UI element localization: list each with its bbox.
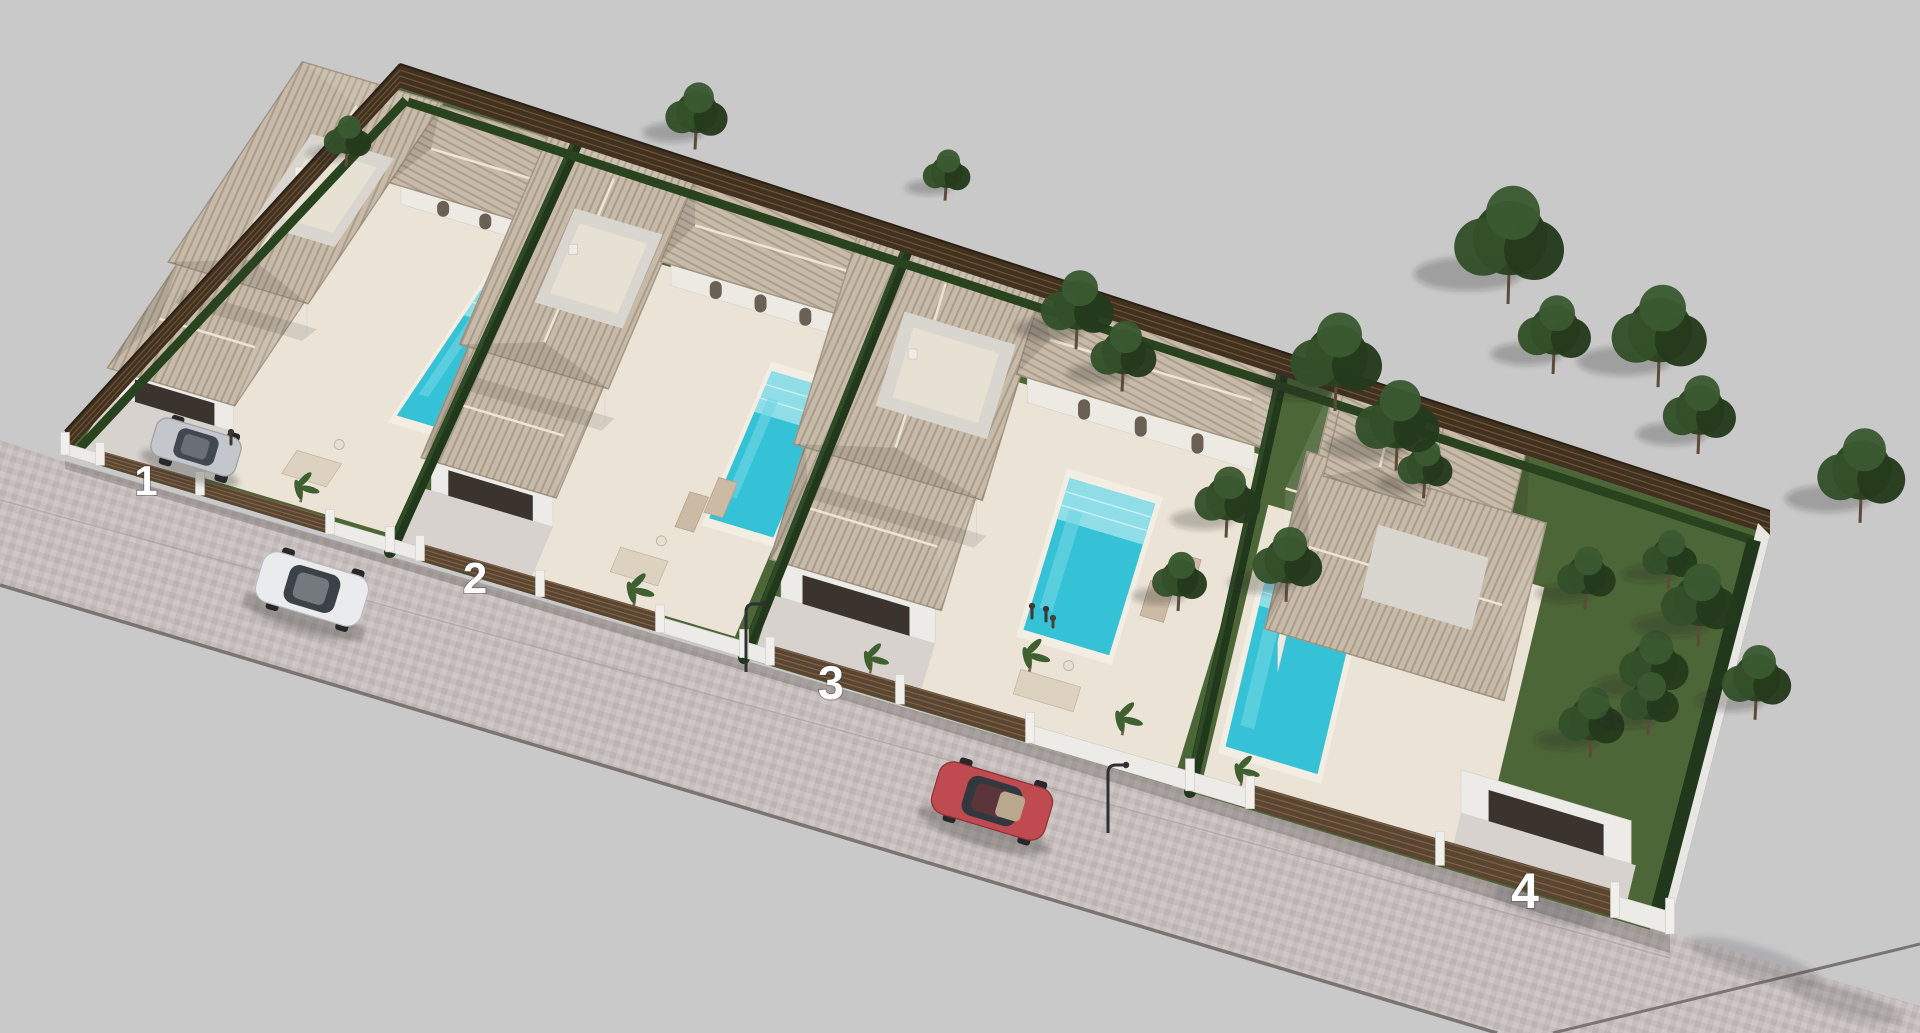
plot-number-4: 4 — [1511, 863, 1539, 919]
plot-number-1: 1 — [134, 457, 157, 504]
plot-number-3: 3 — [818, 656, 844, 709]
plot-number-2: 2 — [463, 554, 487, 603]
render-viewport: 1 2 3 4 — [0, 0, 1920, 1033]
site-plan-render: 1 2 3 4 — [0, 0, 1920, 1033]
